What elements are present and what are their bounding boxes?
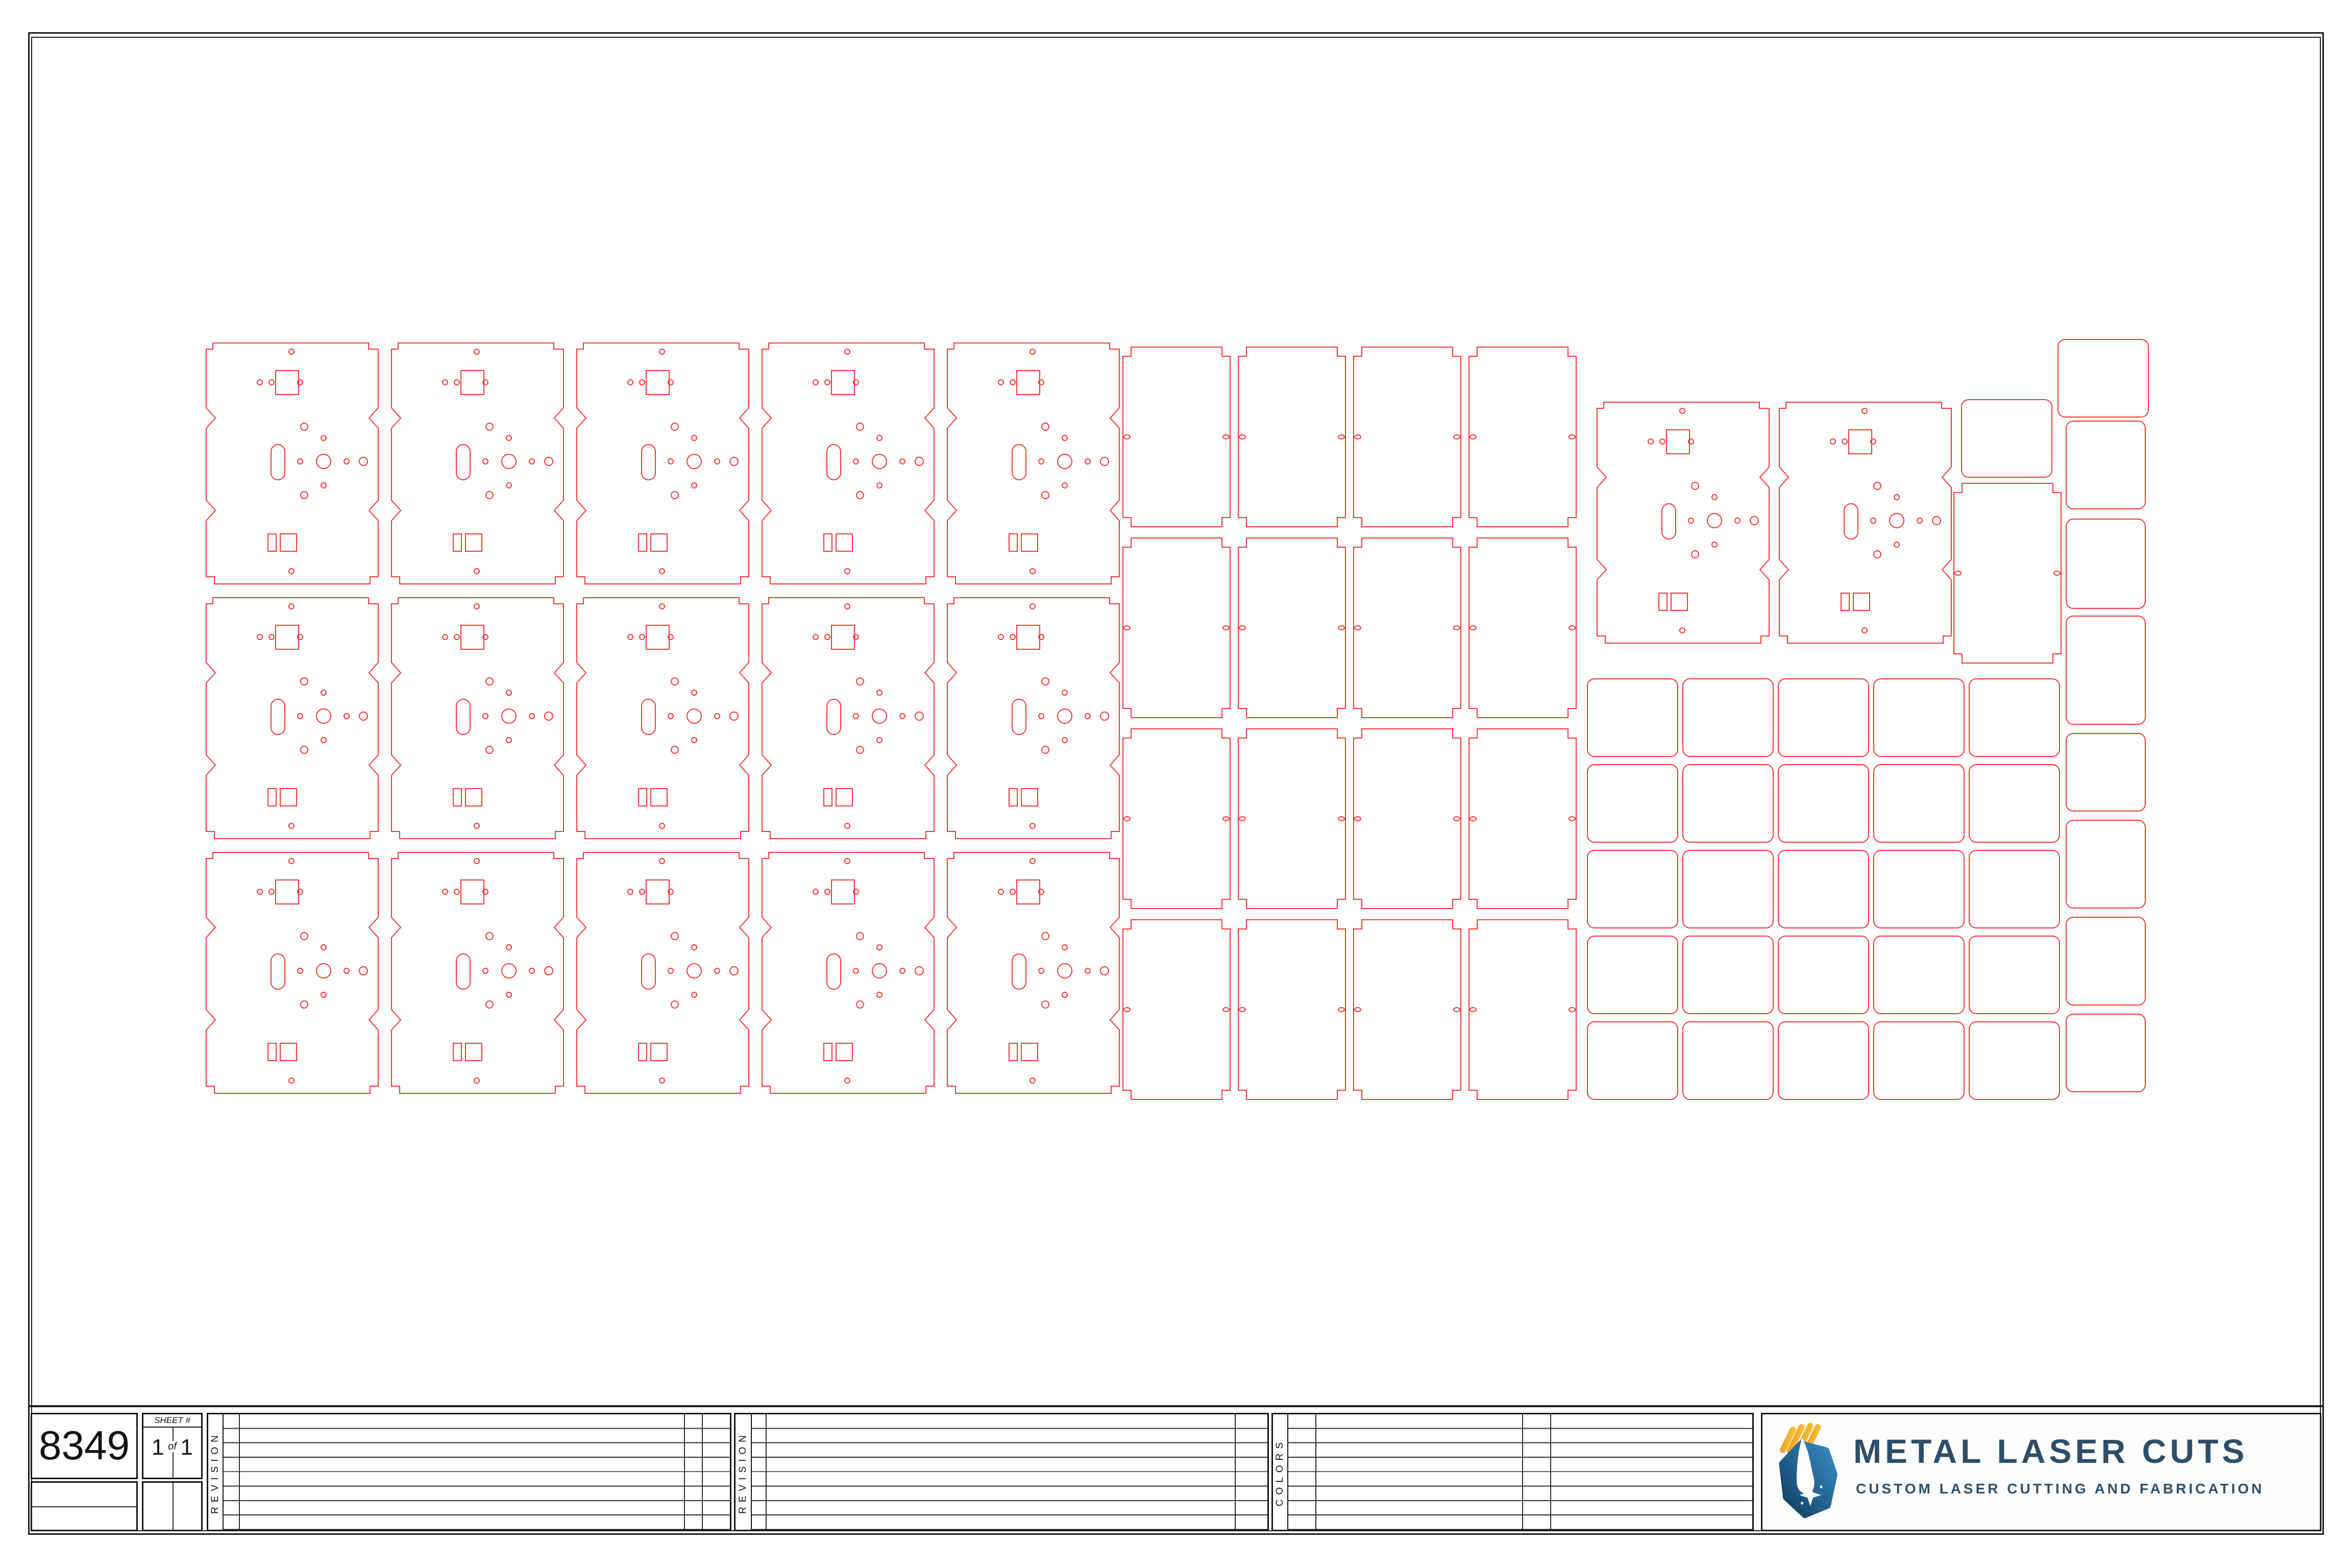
drawing-number-box: 8349: [31, 1413, 138, 1479]
notes-box: [31, 1481, 138, 1531]
company-logo-box: METAL LASER CUTS CUSTOM LASER CUTTING AN…: [1761, 1413, 2321, 1531]
sheet-aux-box: [142, 1481, 203, 1531]
sheet-of-label: of: [166, 1441, 178, 1452]
revision-table-1-col-line: [684, 1414, 685, 1530]
sheet-number-label: SHEET #: [143, 1414, 201, 1428]
laser-hand-hexagon-icon: [1774, 1422, 1844, 1524]
brand-name: METAL LASER CUTS: [1853, 1432, 2248, 1471]
revision-table-1-col-line: [702, 1414, 703, 1530]
colors-table-label-strip: COLORS: [1273, 1414, 1288, 1530]
drawing-number: 8349: [32, 1414, 136, 1477]
revision-table-1-col-line: [239, 1414, 240, 1530]
revision-table-2-label-strip: REVISION: [736, 1414, 752, 1530]
revision-table-2-col-line: [1235, 1414, 1236, 1530]
revision-label: REVISION: [210, 1431, 221, 1514]
revision-table-2: REVISION: [734, 1413, 1269, 1531]
revision-table-2-col-line: [766, 1414, 767, 1530]
notes-box-divider: [32, 1506, 136, 1507]
revision-label: REVISION: [738, 1431, 749, 1514]
sheet-aux-divider: [173, 1483, 174, 1530]
colors-label: COLORS: [1275, 1438, 1286, 1506]
colors-table: COLORS: [1271, 1413, 1754, 1531]
revision-table-1-label-strip: REVISION: [208, 1414, 224, 1530]
colors-table-col-line: [1550, 1414, 1551, 1530]
colors-table-col-line: [1315, 1414, 1316, 1530]
title-block-separator-line: [29, 1405, 2323, 1407]
colors-table-col-line: [1522, 1414, 1523, 1530]
sheet-number-box: SHEET # 1 1 of: [142, 1413, 203, 1479]
revision-table-1: REVISION: [207, 1413, 731, 1531]
brand-tagline: CUSTOM LASER CUTTING AND FABRICATION: [1856, 1481, 2264, 1497]
page-inner-border: [31, 37, 2321, 1531]
